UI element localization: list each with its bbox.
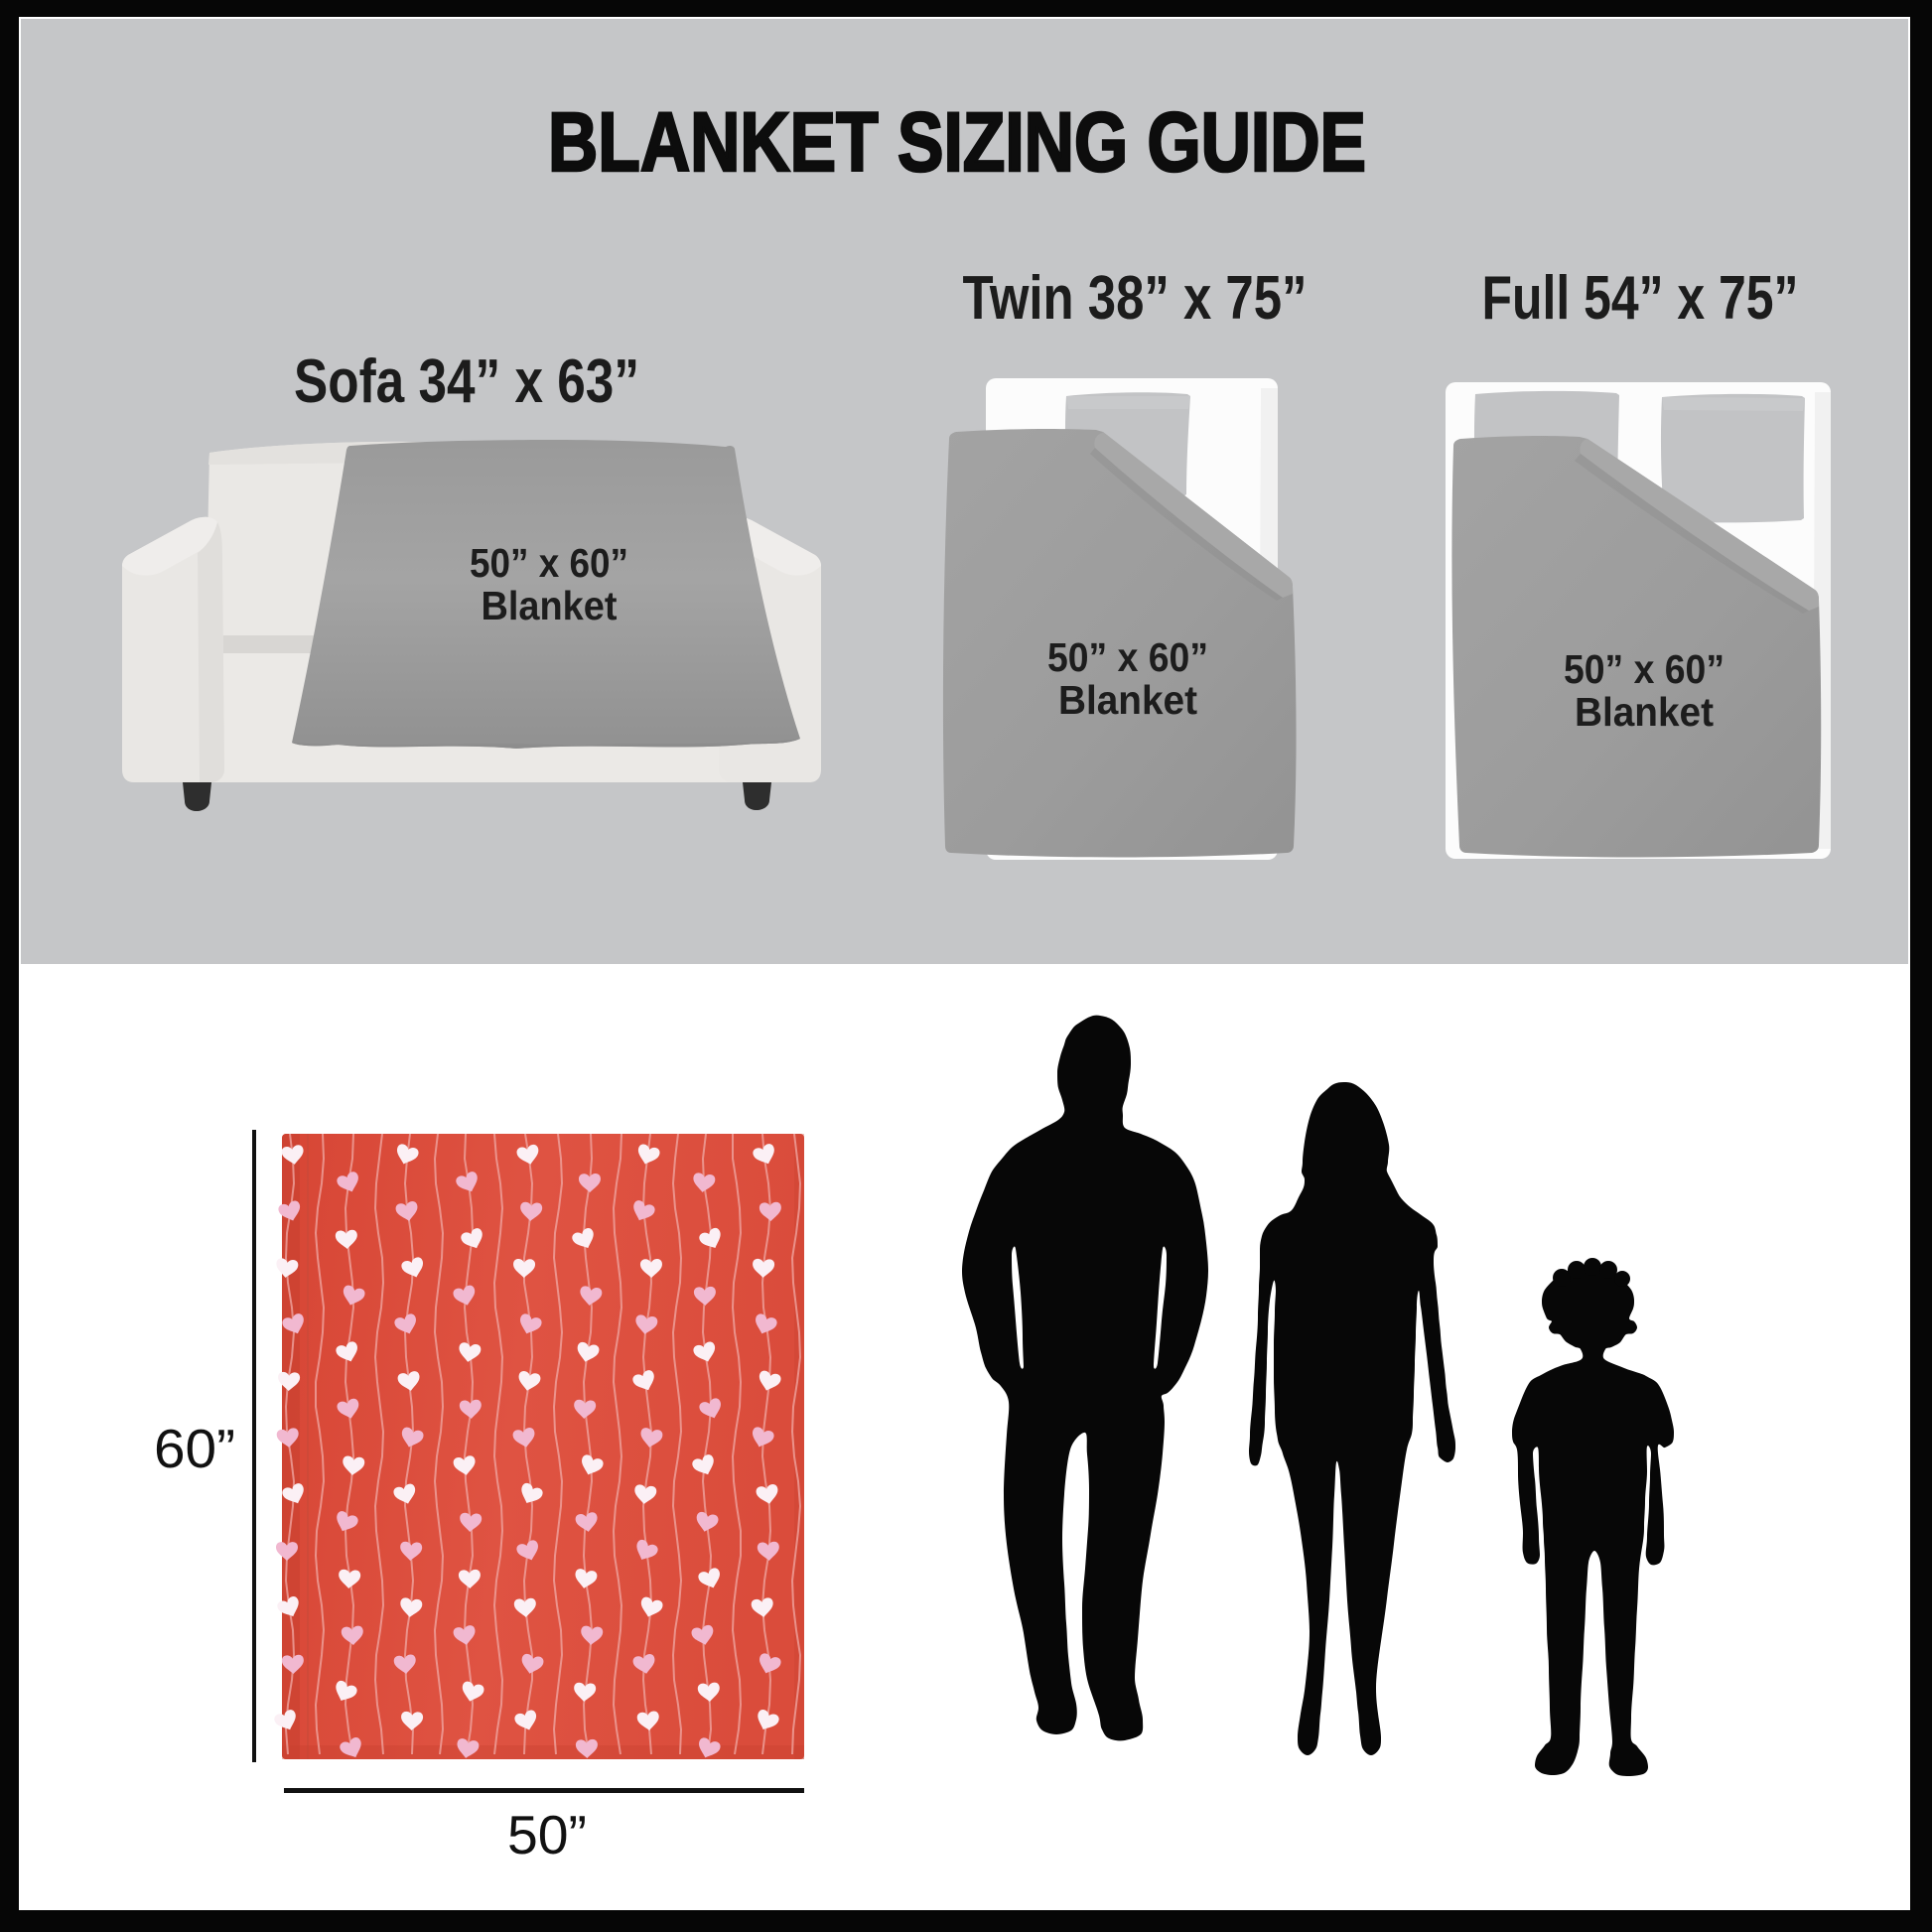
svg-text:50”: 50” [507,1804,587,1865]
svg-text:Blanket: Blanket [482,583,618,628]
svg-text:Blanket: Blanket [1575,689,1714,735]
svg-text:50” x 60”: 50” x 60” [470,540,628,586]
svg-text:Blanket: Blanket [1058,677,1197,723]
svg-text:Sofa 34” x 63”: Sofa 34” x 63” [294,347,639,416]
svg-text:BLANKET SIZING GUIDE: BLANKET SIZING GUIDE [548,95,1366,189]
svg-text:50” x 60”: 50” x 60” [1047,634,1208,680]
svg-text:Twin 38” x 75”: Twin 38” x 75” [963,264,1308,333]
svg-text:60”: 60” [154,1418,235,1479]
svg-text:Full 54” x 75”: Full 54” x 75” [1482,264,1799,333]
svg-text:50” x 60”: 50” x 60” [1564,646,1725,692]
